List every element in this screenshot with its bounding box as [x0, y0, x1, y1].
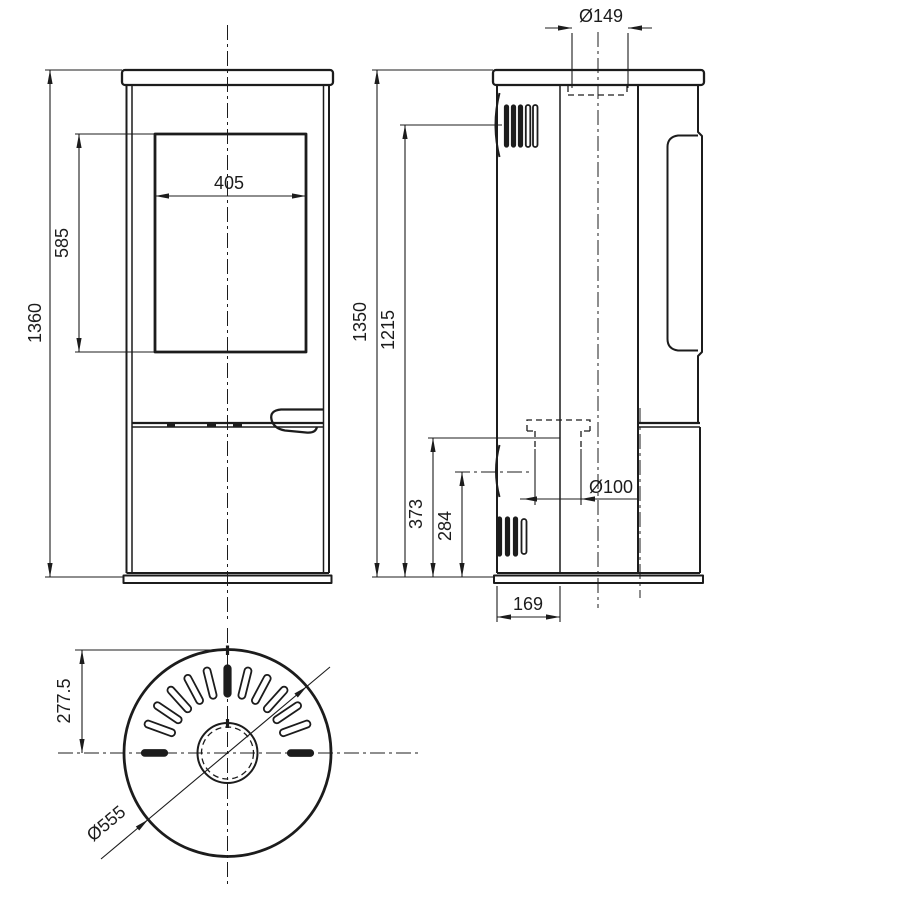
body-diameter-label: Ø555 [83, 802, 130, 846]
rear-air-connection-hidden [527, 420, 590, 447]
dimension-upper-vent-height: 1215 [378, 125, 502, 577]
dimension-front-total-height: 1360 [25, 70, 124, 577]
air-inlet-offset-label: 169 [513, 594, 543, 614]
upper-vent-slots [505, 105, 538, 147]
side-view: Ø149 Ø100 1350 1215 373 [350, 6, 704, 622]
lower-vent-height-label: 284 [435, 511, 455, 541]
top-radius-label: 277.5 [54, 678, 74, 723]
dimension-body-diameter: Ø555 [83, 667, 330, 859]
window-height-label: 585 [52, 228, 72, 258]
top-view: Ø555 277.5 [54, 628, 420, 888]
upper-vent-height-label: 1215 [378, 310, 398, 350]
technical-drawing-canvas: 1360 585 405 [0, 0, 900, 900]
window-width-label: 405 [214, 173, 244, 193]
lower-vent-slots [498, 517, 527, 556]
rear-connection-height-label: 373 [406, 499, 426, 529]
dimension-window-height: 585 [52, 134, 155, 352]
dimension-air-inlet-offset: 169 [497, 586, 560, 622]
side-door-face [698, 85, 702, 423]
rear-connection-diameter-label: Ø100 [589, 477, 633, 497]
door-handle [271, 410, 323, 433]
side-door-frame [668, 136, 699, 351]
stove-dimension-drawing: 1360 585 405 [0, 0, 900, 900]
flue-diameter-label: Ø149 [579, 6, 623, 26]
dimension-rear-connection-diameter: Ø100 [520, 449, 637, 505]
dimension-rear-connection-height: 373 [406, 438, 560, 577]
dimension-window-width: 405 [155, 173, 306, 199]
front-total-height-label: 1360 [25, 303, 45, 343]
dimension-top-radius: 277.5 [54, 650, 232, 753]
front-view: 1360 585 405 [25, 25, 333, 622]
front-door-window [155, 134, 306, 352]
side-total-height-label: 1350 [350, 302, 370, 342]
